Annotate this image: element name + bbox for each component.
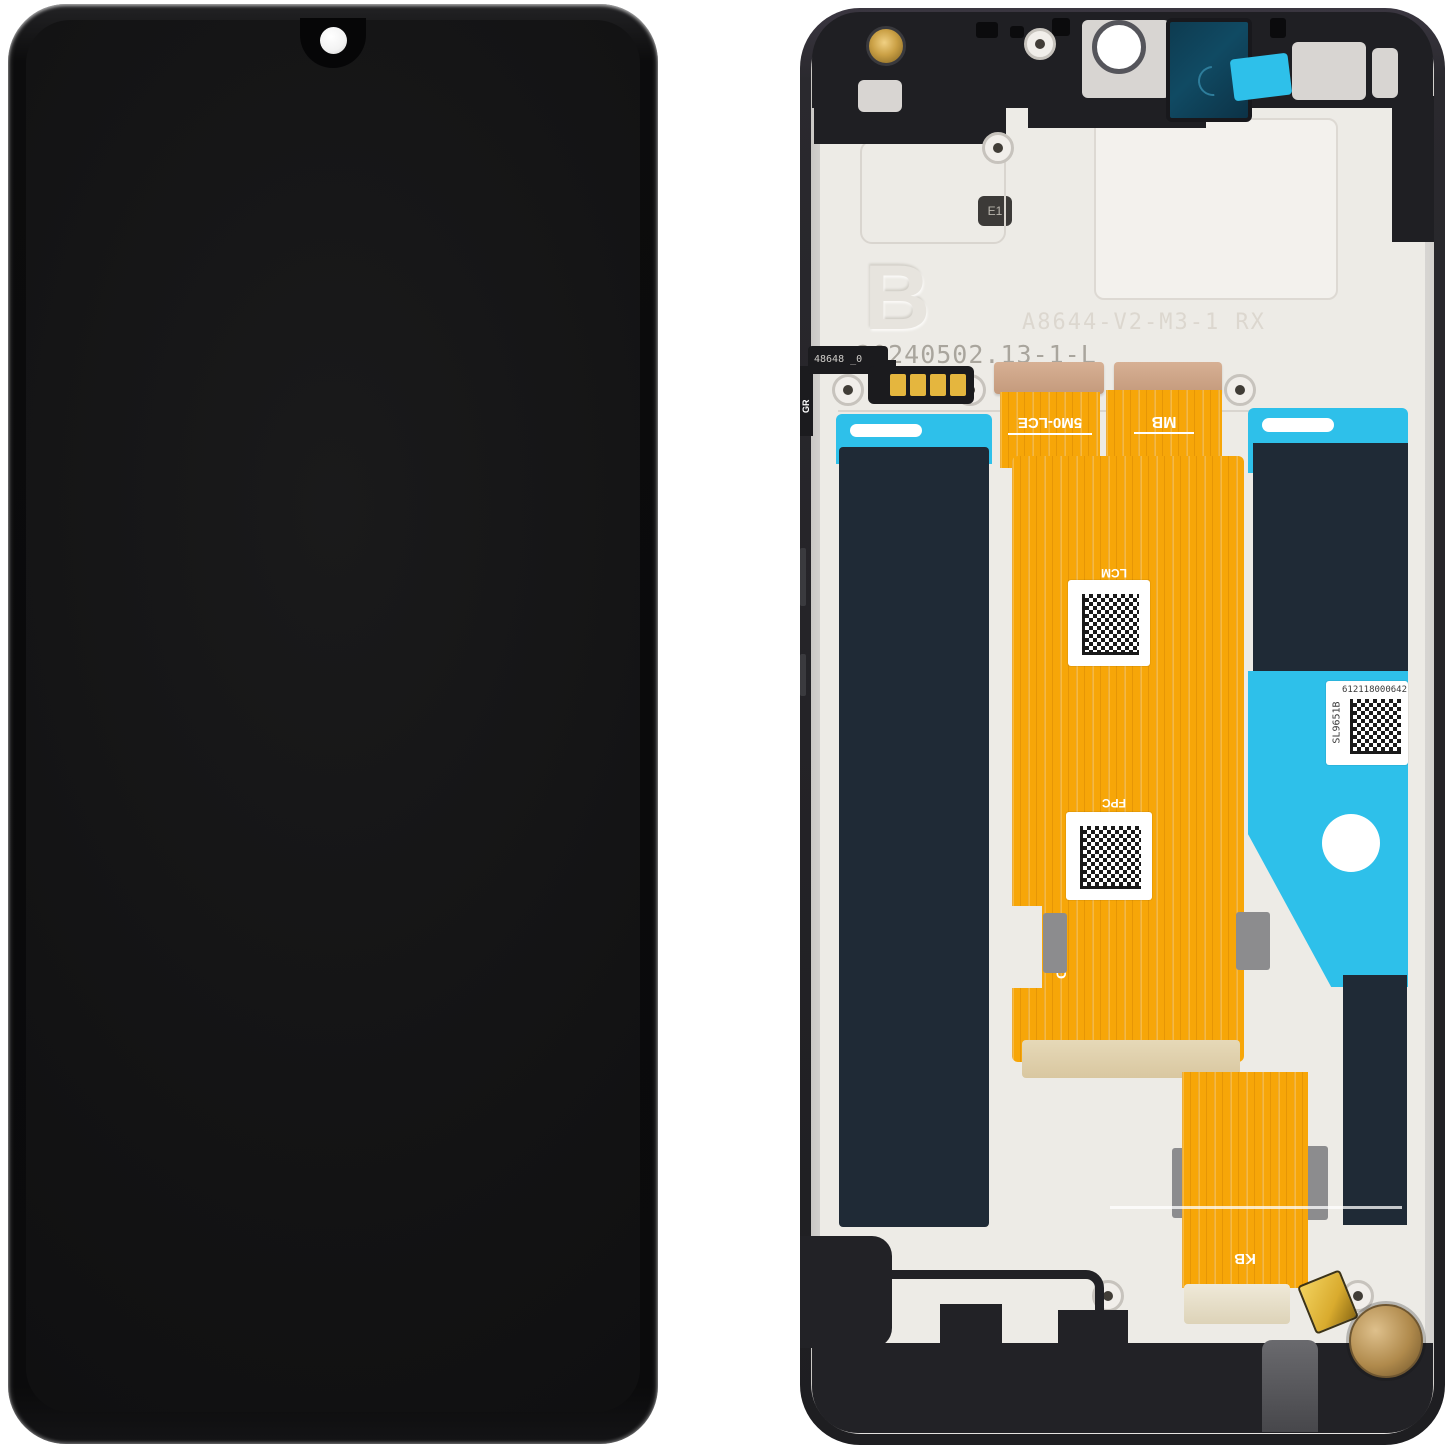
fpc-tag: FPC: [1084, 796, 1144, 810]
cyan-tape-top: [1230, 53, 1293, 102]
lcd-cable-connector: [994, 362, 1104, 394]
tape-slot-cutout: [1262, 418, 1334, 432]
vibration-motor: [1349, 1304, 1423, 1378]
side-key-tab: [800, 654, 806, 696]
camera-through-hole: [1092, 20, 1146, 74]
screw-hole: [982, 132, 1014, 164]
screw-hole: [1024, 28, 1056, 60]
embossed-letter: B: [864, 246, 930, 351]
gold-contact: [950, 374, 966, 396]
metal-bracket: [1292, 42, 1366, 100]
adhesive-strip-left: [839, 447, 989, 1227]
display-back-frame: B A8644-V2-M3-1 RX 20240502.13-1-L E1: [800, 8, 1445, 1445]
side-flex-tag: GR: [801, 385, 811, 413]
side-flex-code: 48648 _0: [814, 354, 862, 365]
serial-label: SL9651B 612118000642: [1326, 681, 1408, 765]
metal-bracket: [858, 80, 902, 112]
contact-connector: [868, 366, 974, 404]
side-key-tab: [800, 548, 806, 606]
bottom-jag: [1058, 1310, 1128, 1350]
screw-hole: [1224, 374, 1256, 406]
panel-notch: [1012, 906, 1042, 988]
gold-contact: [890, 374, 906, 396]
bottom-plastic-band: [812, 1343, 1433, 1433]
gray-pad: [1043, 913, 1067, 973]
band-extension: [1392, 96, 1434, 242]
band-slot: [1010, 26, 1024, 38]
lcm-tag: LCM: [1084, 566, 1144, 580]
gray-pad: [1236, 912, 1270, 970]
band-extension: [814, 100, 1006, 144]
adhesive-strip-right: [1343, 975, 1407, 1225]
front-camera-hole: [320, 27, 347, 54]
kb-cable-label: KB: [1216, 1250, 1274, 1267]
side-flex-vertical: GR: [800, 366, 813, 436]
qr-code: [1082, 594, 1139, 655]
lcd-cable-label: 5M0-LCE: [1008, 414, 1092, 435]
kb-bottom-connector: [1184, 1284, 1290, 1324]
bottom-left-plastic: [800, 1236, 892, 1348]
plate-panel-seam: [1094, 118, 1338, 300]
tape-slot-cutout: [850, 424, 922, 437]
scratch-line: [1110, 1206, 1402, 1209]
charging-port-plug: [1262, 1340, 1318, 1432]
qr-code: [1080, 826, 1141, 889]
band-slot: [1270, 18, 1286, 38]
adhesive-pad-right: [1253, 443, 1408, 673]
gold-screw: [866, 26, 906, 66]
serial-vertical-code: SL9651B: [1332, 688, 1343, 758]
protective-film-swirl: [1192, 60, 1234, 102]
engraved-model-code: A8644-V2-M3-1 RX: [1022, 310, 1322, 335]
serial-number: 612118000642: [1342, 685, 1407, 695]
product-photo: B A8644-V2-M3-1 RX 20240502.13-1-L E1: [0, 0, 1445, 1445]
band-slot: [976, 22, 998, 38]
datamatrix-code: [1350, 699, 1401, 754]
gold-contact: [930, 374, 946, 396]
screw-hole: [832, 374, 864, 406]
bottom-jag: [940, 1304, 1002, 1350]
tape-circle-cutout: [1322, 814, 1380, 872]
keyboard-flex-cable: KB: [1182, 1072, 1308, 1288]
gold-contact: [910, 374, 926, 396]
lcm-qr-sticker: [1068, 580, 1150, 666]
front-screen: [26, 20, 640, 1412]
metal-bracket: [1372, 48, 1398, 98]
fpc-qr-sticker: [1066, 812, 1152, 900]
mb-cable-label: MB: [1134, 412, 1194, 434]
band-slot: [1052, 18, 1070, 36]
display-front-panel: [8, 4, 658, 1444]
